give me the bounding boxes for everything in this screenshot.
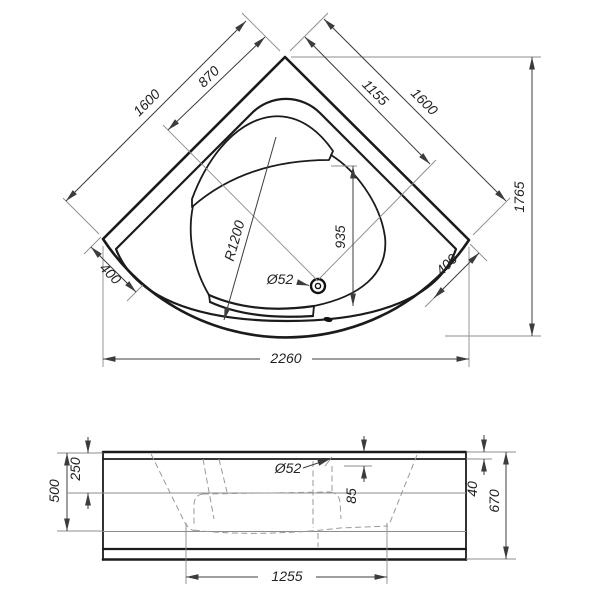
drain	[311, 279, 325, 293]
basin-edge-left	[191, 206, 209, 295]
front-dimension-lines	[67, 435, 506, 577]
dim-drain-diameter: Ø52	[266, 271, 294, 287]
dim-basin-radius: R1200	[221, 218, 248, 262]
dim-overall-depth: 1765	[511, 181, 527, 212]
dim-inner-depth: 500	[46, 479, 62, 503]
plan-extension-lines	[63, 13, 541, 367]
dim-overall-width: 2260	[269, 350, 301, 366]
dim-base-length: 1255	[271, 568, 302, 584]
technical-drawing-page: 1600 870 1155 1600 1765 400 400 2260 935…	[0, 0, 600, 600]
dim-right-corner-offset: 400	[433, 250, 461, 278]
dim-drain-to-front: 935	[332, 225, 348, 249]
bathtub-drawing-svg: 1600 870 1155 1600 1765 400 400 2260 935…	[0, 0, 600, 600]
dim-left-edge-to-drain: 870	[195, 62, 223, 90]
dim-overall-height: 670	[486, 489, 502, 513]
plan-view: 1600 870 1155 1600 1765 400 400 2260 935…	[63, 13, 541, 367]
dim-right-edge-total: 1600	[408, 85, 441, 118]
front-view: 500 250 Ø52 85 40 670 1255	[46, 435, 516, 584]
dim-rim-to-seat: 250	[67, 457, 83, 482]
front-ledge-band-caps	[209, 295, 314, 316]
dim-overflow-diameter: Ø52	[274, 460, 302, 476]
front-dimension-labels: 500 250 Ø52 85 40 670 1255	[46, 457, 502, 584]
dim-right-edge-to-drain: 1155	[359, 76, 392, 109]
tub-inner-rim	[116, 99, 456, 321]
overflow-hole	[323, 316, 333, 323]
dim-overflow-offset: 85	[343, 488, 359, 504]
dim-left-edge-total: 1600	[130, 86, 163, 119]
dim-rim-height: 40	[464, 481, 480, 497]
